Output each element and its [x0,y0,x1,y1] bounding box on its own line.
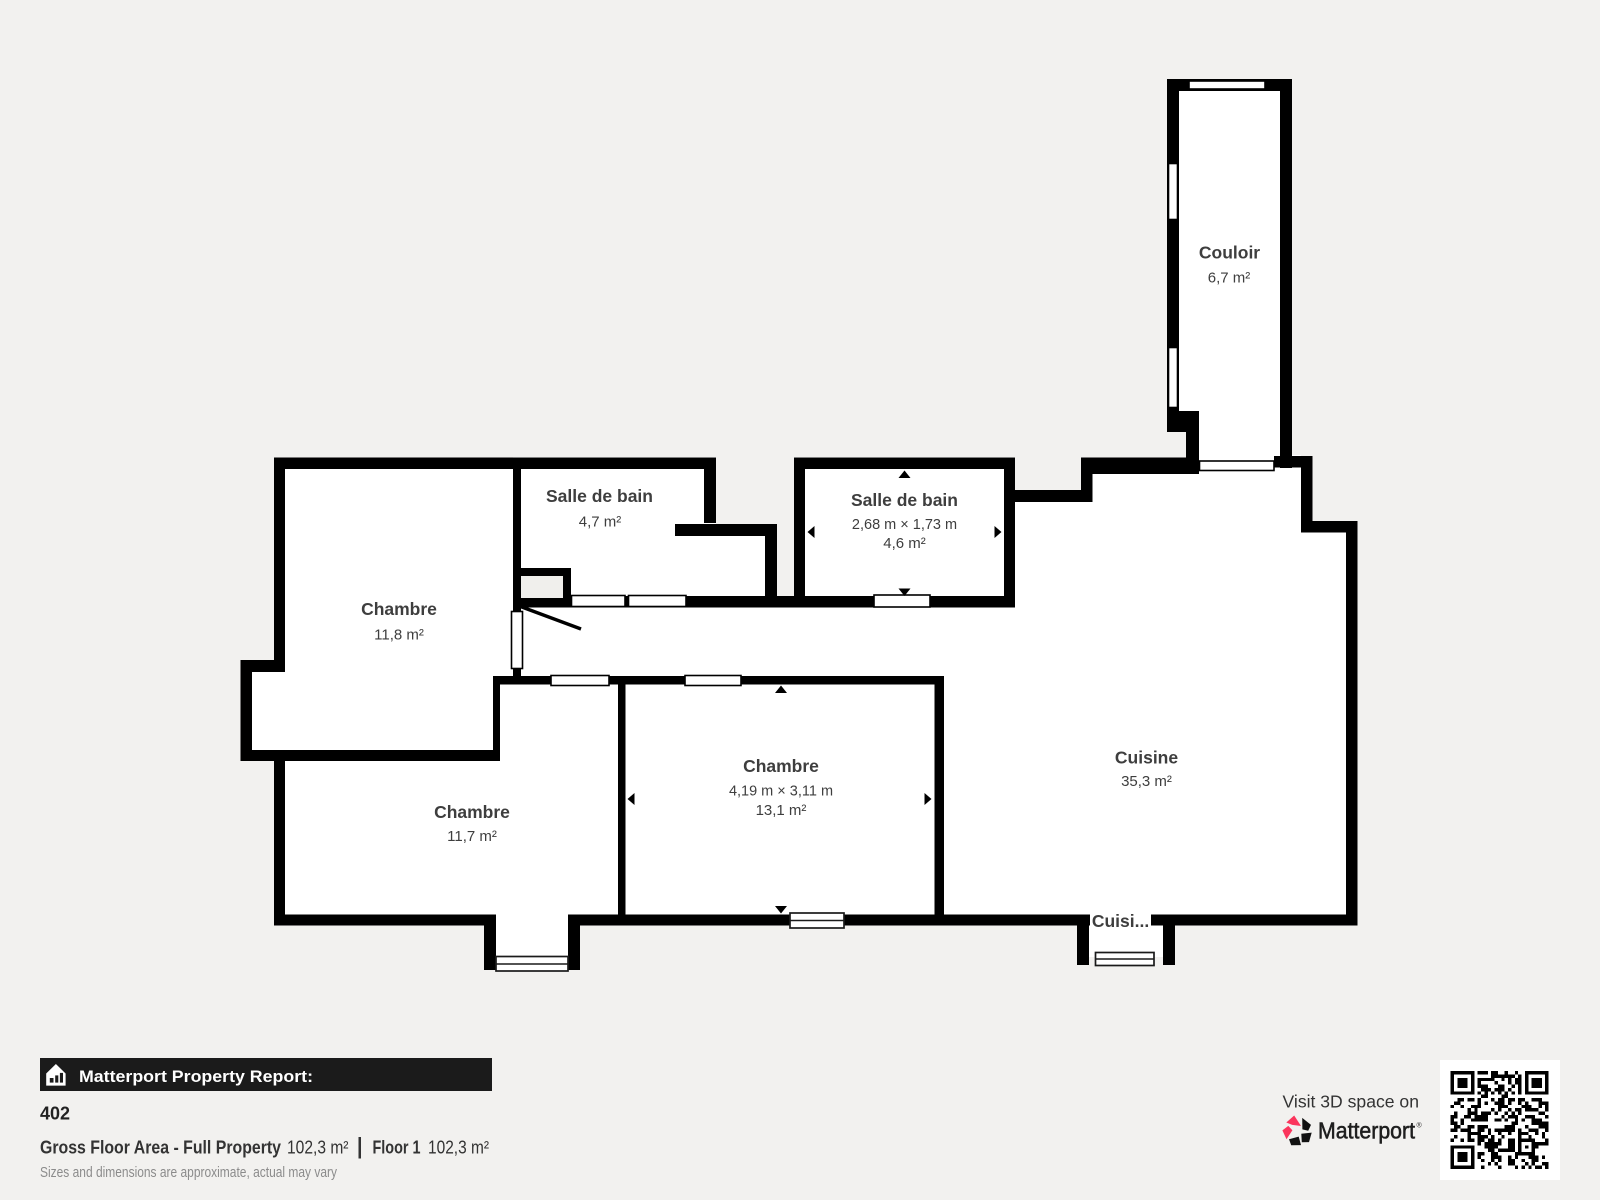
svg-text:Matterport: Matterport [1318,1118,1415,1144]
svg-text:2,68 m × 1,73 m: 2,68 m × 1,73 m [852,517,957,533]
svg-text:102,3 m²: 102,3 m² [428,1138,489,1158]
svg-text:13,1 m²: 13,1 m² [756,802,807,819]
svg-text:Salle de bain: Salle de bain [546,486,653,506]
svg-text:Chambre: Chambre [743,756,819,776]
svg-text:Chambre: Chambre [361,599,437,619]
svg-text:Couloir: Couloir [1199,243,1260,263]
svg-text:Gross Floor Area - Full Proper: Gross Floor Area - Full Property [40,1138,281,1158]
svg-text:Matterport Property Report:: Matterport Property Report: [79,1067,313,1086]
svg-text:102,3 m²: 102,3 m² [287,1138,349,1158]
svg-text:35,3 m²: 35,3 m² [1121,773,1172,790]
svg-text:Sizes and dimensions are appro: Sizes and dimensions are approximate, ac… [40,1164,337,1181]
svg-text:Chambre: Chambre [434,802,510,822]
svg-text:11,8 m²: 11,8 m² [374,627,424,644]
svg-text:11,7 m²: 11,7 m² [447,828,497,845]
svg-text:4,6 m²: 4,6 m² [883,535,926,552]
svg-text:6,7 m²: 6,7 m² [1208,270,1251,287]
svg-text:Visit 3D space on: Visit 3D space on [1283,1091,1420,1111]
svg-text:4,7 m²: 4,7 m² [579,514,622,531]
svg-text:Salle de bain: Salle de bain [851,490,958,510]
svg-text:4,19 m × 3,11 m: 4,19 m × 3,11 m [729,784,833,800]
svg-text:Cuisine: Cuisine [1115,748,1178,768]
svg-text:402: 402 [40,1103,70,1124]
svg-text:®: ® [1417,1122,1423,1130]
svg-text:Cuisi...: Cuisi... [1092,911,1149,931]
svg-text:Floor 1: Floor 1 [373,1138,421,1158]
